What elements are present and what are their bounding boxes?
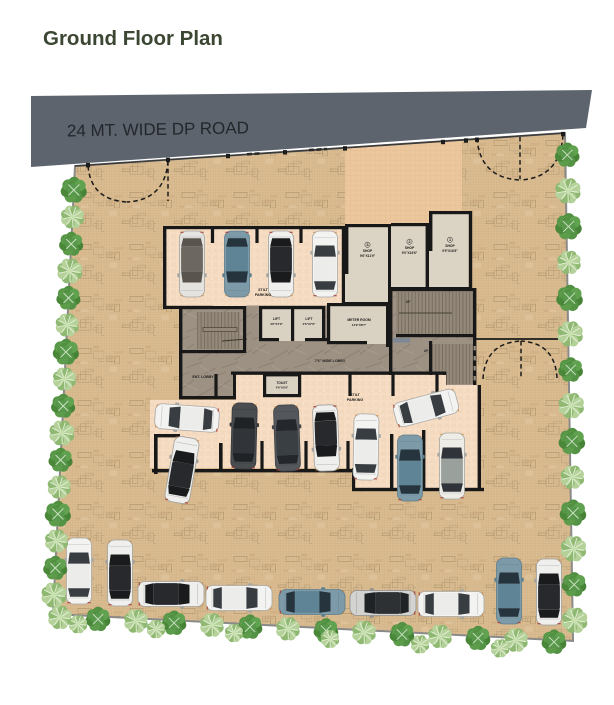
svg-text:STILT: STILT bbox=[258, 288, 269, 292]
svg-text:SHOP: SHOP bbox=[445, 244, 455, 248]
svg-text:LIFT: LIFT bbox=[305, 317, 313, 321]
svg-text:9'9"X16'6": 9'9"X16'6" bbox=[442, 249, 458, 253]
svg-text:9'0"X16'6": 9'0"X16'6" bbox=[402, 251, 418, 255]
svg-text:14'9"X8'7": 14'9"X8'7" bbox=[352, 323, 367, 327]
svg-text:TOILET: TOILET bbox=[276, 381, 287, 385]
svg-text:METER ROOM: METER ROOM bbox=[347, 318, 371, 322]
svg-text:Ground Floor Plan: Ground Floor Plan bbox=[43, 27, 223, 50]
svg-text:PARKING: PARKING bbox=[347, 398, 364, 402]
svg-text:4'6"X7'9": 4'6"X7'9" bbox=[303, 322, 317, 326]
svg-text:7'6" WIDE LOBBY: 7'6" WIDE LOBBY bbox=[315, 359, 346, 363]
svg-text:PARKING: PARKING bbox=[255, 293, 272, 297]
svg-text:9'6"X11'9": 9'6"X11'9" bbox=[360, 254, 376, 258]
svg-text:4'6"X5'9": 4'6"X5'9" bbox=[276, 386, 289, 390]
svg-text:24 MT. WIDE DP ROAD: 24 MT. WIDE DP ROAD bbox=[67, 118, 249, 140]
svg-text:SHOP: SHOP bbox=[405, 246, 415, 250]
svg-text:STILT: STILT bbox=[350, 393, 361, 397]
svg-text:4'6"X7'9": 4'6"X7'9" bbox=[270, 322, 284, 326]
svg-text:LIFT: LIFT bbox=[273, 317, 281, 321]
svg-text:SHOP: SHOP bbox=[363, 249, 373, 253]
svg-text:ENT. LOBBY: ENT. LOBBY bbox=[192, 375, 214, 379]
